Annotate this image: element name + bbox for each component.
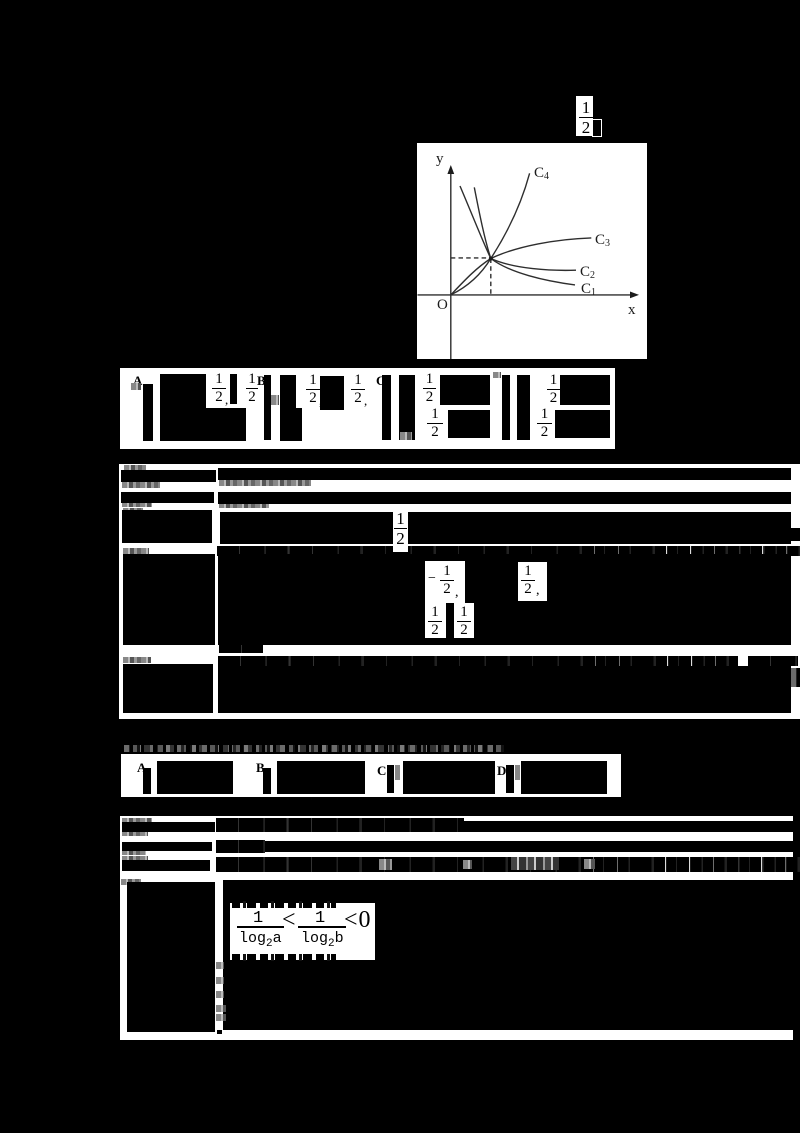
svg-text:O: O — [437, 297, 448, 313]
svg-text:C1: C1 — [581, 281, 596, 298]
svg-text:C3: C3 — [595, 232, 610, 249]
svg-text:y: y — [436, 151, 444, 167]
svg-text:C2: C2 — [580, 264, 595, 281]
svg-text:x: x — [628, 302, 636, 318]
svg-text:C4: C4 — [534, 165, 549, 182]
